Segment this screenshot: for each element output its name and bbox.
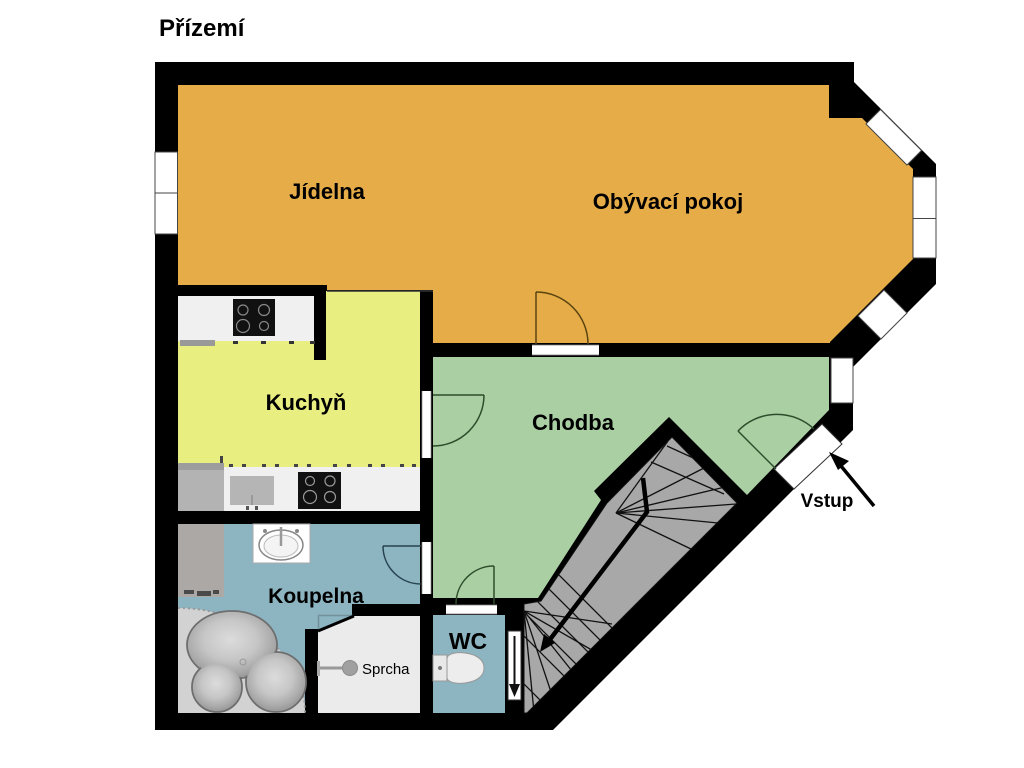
- svg-text:Přízemí: Přízemí: [159, 15, 246, 42]
- svg-text:Obývací pokoj: Obývací pokoj: [593, 189, 743, 214]
- svg-text:Chodba: Chodba: [532, 410, 615, 435]
- svg-text:Koupelna: Koupelna: [268, 585, 364, 608]
- svg-text:Kuchyň: Kuchyň: [266, 390, 347, 415]
- svg-text:Jídelna: Jídelna: [289, 179, 366, 204]
- svg-text:Sprcha: Sprcha: [362, 661, 410, 678]
- svg-text:Vstup: Vstup: [801, 491, 854, 512]
- svg-text:WC: WC: [449, 628, 487, 654]
